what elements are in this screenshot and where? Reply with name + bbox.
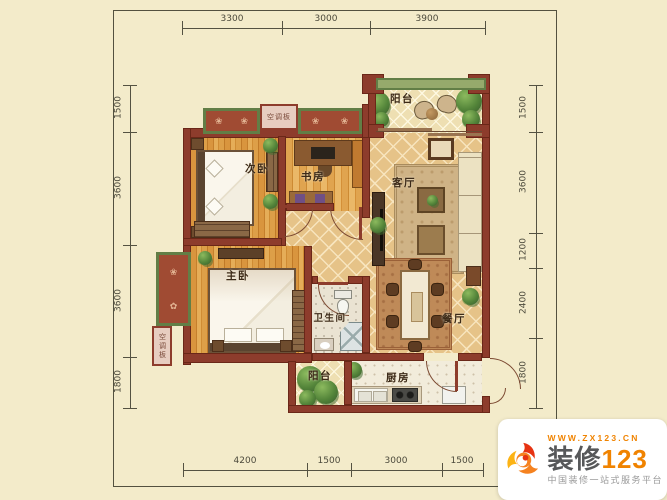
side-table bbox=[428, 138, 454, 160]
zx123-logo-box[interactable]: WWW.ZX123.CN 装修123 中国装修一站式服务平台 bbox=[498, 419, 667, 500]
wall-decor bbox=[466, 266, 481, 286]
monitor bbox=[311, 147, 335, 159]
dimension-line-top bbox=[182, 28, 485, 29]
wall-right-lower bbox=[482, 396, 490, 413]
dimension-tick bbox=[529, 408, 543, 409]
secondary-bed bbox=[196, 150, 254, 226]
ac-panel-top: 空调板 bbox=[260, 104, 298, 130]
secondary-bedroom-window-box: ❀ ❀ bbox=[203, 108, 260, 134]
dining-chair bbox=[431, 283, 444, 296]
study-door-leaf bbox=[359, 207, 362, 239]
dimension-tick bbox=[123, 85, 137, 86]
master-bedroom-window-box: ❀ ✿ bbox=[156, 252, 191, 326]
logo-brand-zh: 装修 bbox=[547, 444, 601, 474]
secondary-closet bbox=[194, 221, 250, 238]
wall-balcony-kitchen-divider bbox=[344, 361, 352, 405]
flower-icon: ❀ bbox=[312, 117, 320, 126]
dim-left-4: 1800 bbox=[115, 362, 124, 402]
flower-icon: ✿ bbox=[170, 302, 178, 311]
dimension-tick bbox=[370, 21, 371, 35]
dimension-tick bbox=[123, 132, 137, 133]
plant bbox=[370, 217, 386, 233]
label-kitchen: 厨房 bbox=[376, 373, 420, 384]
dimension-line-left bbox=[130, 85, 131, 408]
plant bbox=[263, 194, 278, 209]
dimension-tick bbox=[182, 21, 183, 35]
nightstand bbox=[280, 340, 292, 352]
dimension-tick bbox=[123, 408, 137, 409]
flower-icon: ❀ bbox=[240, 117, 248, 126]
flame-logo-icon bbox=[505, 434, 541, 486]
dimension-tick bbox=[282, 21, 283, 35]
wall-kitchen-top-right bbox=[458, 353, 482, 361]
decor-pot bbox=[426, 108, 438, 120]
dim-left-2: 3600 bbox=[115, 168, 124, 208]
dim-left-1: 1500 bbox=[115, 88, 124, 128]
balcony-window bbox=[376, 78, 486, 90]
ac-panel-top-label: 空调板 bbox=[267, 114, 291, 121]
study-desk bbox=[294, 140, 352, 166]
dim-top-2: 3000 bbox=[301, 15, 351, 24]
label-study: 书房 bbox=[291, 172, 335, 183]
dining-table bbox=[400, 270, 430, 340]
dining-chair bbox=[386, 315, 399, 328]
dimension-tick bbox=[529, 85, 543, 86]
dimension-tick bbox=[529, 268, 543, 269]
dimension-line-bottom bbox=[183, 470, 483, 471]
wall-bottom-main bbox=[288, 405, 490, 413]
sliding-door-panel bbox=[428, 133, 482, 136]
dimension-tick bbox=[529, 233, 543, 234]
dimension-tick bbox=[485, 21, 486, 35]
tea-table bbox=[417, 225, 445, 255]
dining-chair bbox=[386, 283, 399, 296]
logo-brand: 装修123 bbox=[547, 446, 663, 472]
sliding-door-track bbox=[376, 131, 482, 132]
master-dresser bbox=[218, 248, 264, 259]
dim-bottom-1: 4200 bbox=[220, 457, 270, 466]
wall-right-main bbox=[482, 133, 490, 358]
pillow bbox=[205, 197, 223, 215]
table-runner bbox=[411, 292, 423, 322]
dining-chair bbox=[408, 259, 422, 270]
dim-top-1: 3300 bbox=[207, 15, 257, 24]
table-plant bbox=[427, 195, 438, 206]
wall-left-main bbox=[183, 128, 191, 365]
sliding-door-panel bbox=[378, 128, 432, 131]
kitchen-sink bbox=[354, 388, 388, 402]
bed-headboard bbox=[198, 152, 205, 224]
bathroom-sink bbox=[314, 338, 334, 351]
dim-left-3: 3600 bbox=[115, 281, 124, 321]
logo-text-block: WWW.ZX123.CN 装修123 中国装修一站式服务平台 bbox=[547, 434, 663, 485]
logo-website: WWW.ZX123.CN bbox=[547, 434, 663, 443]
balcony-plant bbox=[314, 380, 338, 404]
flower-icon: ❀ bbox=[215, 117, 223, 126]
dimension-tick bbox=[123, 357, 137, 358]
ac-panel-left: 空调板 bbox=[152, 326, 172, 366]
floorplan-canvas: 3300 3000 3900 4200 1500 3000 1500 1500 … bbox=[0, 0, 667, 500]
plant bbox=[198, 251, 212, 265]
label-bathroom: 卫生间 bbox=[297, 314, 363, 324]
study-window-box: ❀ ❀ bbox=[298, 108, 362, 134]
sink-basin bbox=[373, 391, 387, 402]
label-balcony-top: 阳台 bbox=[380, 94, 424, 105]
bathroom-door-leaf bbox=[318, 282, 348, 285]
plant bbox=[263, 138, 278, 153]
logo-tagline: 中国装修一站式服务平台 bbox=[547, 476, 663, 485]
dim-bottom-2: 1500 bbox=[304, 457, 354, 466]
sofa bbox=[458, 152, 482, 272]
dim-bottom-3: 3000 bbox=[371, 457, 421, 466]
flower-icon: ❀ bbox=[170, 268, 178, 277]
coffee-table bbox=[417, 187, 445, 213]
bench-pillow bbox=[295, 194, 305, 203]
pillow bbox=[205, 159, 223, 177]
wall-master-right bbox=[304, 246, 312, 353]
nightstand bbox=[212, 340, 224, 352]
master-door-leaf bbox=[284, 205, 312, 208]
dimension-tick bbox=[529, 338, 543, 339]
bench-pillow bbox=[315, 194, 325, 203]
dim-top-3: 3900 bbox=[402, 15, 452, 24]
kitchen-door-leaf bbox=[455, 361, 458, 391]
dimension-tick bbox=[123, 245, 137, 246]
label-secondary-bedroom: 次卧 bbox=[235, 164, 279, 175]
dim-right-3: 1200 bbox=[520, 230, 529, 270]
dim-right-2: 3600 bbox=[520, 162, 529, 202]
sink-basin bbox=[320, 342, 330, 349]
wall-bath-right bbox=[362, 276, 370, 353]
plant bbox=[462, 288, 479, 305]
label-dining-room: 餐厅 bbox=[432, 314, 476, 325]
wall-bedrooms-horizontal bbox=[183, 238, 282, 246]
pillow bbox=[224, 328, 252, 342]
dimension-line-right bbox=[536, 85, 537, 408]
label-master-bedroom: 主卧 bbox=[216, 271, 260, 282]
dimension-tick bbox=[183, 463, 184, 477]
nightstand bbox=[191, 138, 204, 150]
label-living-room: 客厅 bbox=[382, 178, 426, 189]
label-balcony-bottom: 阳台 bbox=[298, 371, 342, 382]
dim-right-4: 2400 bbox=[520, 283, 529, 323]
dimension-tick bbox=[529, 132, 543, 133]
stove bbox=[392, 388, 418, 402]
logo-brand-number: 123 bbox=[602, 444, 648, 474]
wall-kitchen-top-left bbox=[312, 353, 424, 361]
wall-study-right bbox=[362, 133, 370, 218]
ac-panel-left-label: 空调板 bbox=[159, 333, 166, 360]
dim-bottom-4: 1500 bbox=[437, 457, 487, 466]
dim-right-1: 1500 bbox=[520, 88, 529, 128]
dining-chair bbox=[408, 341, 422, 352]
flower-icon: ❀ bbox=[341, 117, 349, 126]
sink-basin bbox=[358, 391, 372, 402]
